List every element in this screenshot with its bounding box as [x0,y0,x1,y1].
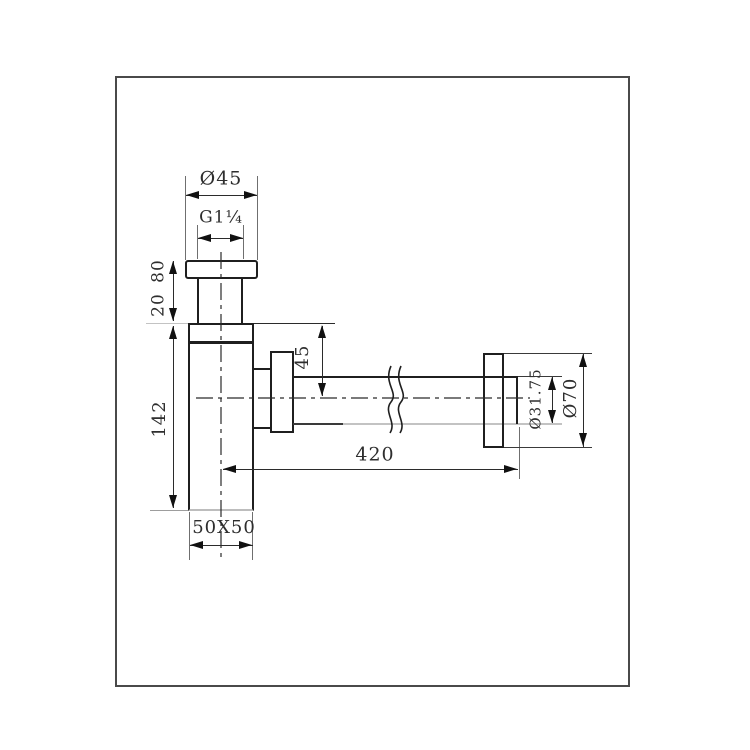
arrowhead-left [223,465,236,473]
extension-line-collar-right [254,323,335,324]
arrowhead-up [169,261,177,274]
centerline-overlay [0,0,750,750]
extension-line-flange-bottom [504,447,592,448]
dimension-label-20: 20 [151,293,168,317]
dimension-label-pipe-diameter: Ø31.75 [529,368,544,429]
pipe-break-squiggle-right [398,366,403,433]
arrowhead-left [198,234,211,242]
extension-line [197,225,198,259]
extension-line [257,176,258,260]
arrowhead-left [186,191,199,199]
extension-line [243,225,244,259]
arrowhead-right [504,465,517,473]
dimension-line [173,326,174,508]
extension-line-body-bottom [150,510,188,511]
dimension-label-flange-diameter: Ø70 [562,378,580,419]
dimension-label-142: 142 [151,400,169,437]
arrowhead-up [318,325,326,338]
extension-line [185,176,186,260]
arrowhead-down [579,433,587,446]
dimension-label-45: 45 [294,345,312,370]
arrowhead-right [230,234,243,242]
dimension-label-thread: G1¼ [199,210,243,227]
arrowhead-up [548,377,556,390]
dimension-line [223,469,518,470]
arrowhead-down [318,383,326,396]
arrowhead-down [169,495,177,508]
dimension-label-body-section: 50X50 [192,519,256,537]
pipe-break-squiggle-left [388,366,393,433]
extension-line-collar-top [146,323,188,324]
arrowhead-right [244,191,257,199]
arrowhead-left [190,541,203,549]
arrowhead-right [239,541,252,549]
extension-line [189,512,190,560]
dimension-label-top-diameter: Ø45 [200,170,243,189]
arrowhead-up [169,326,177,339]
dimension-label-80: 80 [151,259,168,283]
dimension-label-420: 420 [355,446,394,465]
technical-drawing-canvas: Ø45 G1¼ 80 20 142 45 [0,0,750,750]
extension-line-pipe-end [519,427,520,479]
arrowhead-down [548,410,556,423]
arrowhead-up [579,354,587,367]
arrowhead-down [169,308,177,321]
